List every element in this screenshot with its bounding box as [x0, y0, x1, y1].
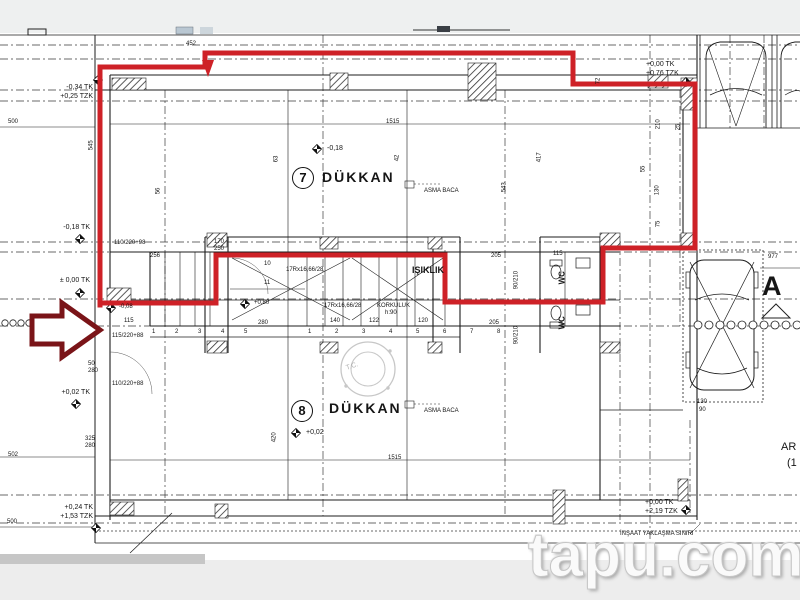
spot-level-stair: +0,80 [254, 300, 269, 306]
elevation-top-right-line2: +0,76 TZK [646, 70, 679, 77]
stair-numbers-right: 1 2 3 4 5 6 7 8 [308, 329, 511, 335]
dim-1515-upper: 1515 [386, 119, 399, 125]
elevation-left-3: +0,02 TK [50, 389, 90, 396]
dim-280-w: 280 [88, 368, 98, 374]
dim-500-upper: 500 [8, 119, 18, 125]
dim-v-545: 545 [89, 140, 95, 150]
elevation-bottom-right-line2: +2,19 TZK [645, 508, 678, 515]
elevation-bottom-left-line1: +0,24 TK [55, 504, 93, 511]
tapu-watermark: tapu.com [528, 520, 800, 591]
dim-205-a: 205 [491, 253, 501, 259]
spot-level-hall: -0,08 [119, 304, 133, 310]
elevation-left-1: -0,18 TK [52, 224, 90, 231]
elevation-top-right-line1: +0,00 TK [646, 61, 674, 68]
dim-115-b: 115 [553, 251, 563, 257]
dim-v-56: 56 [156, 188, 162, 195]
dim-90-park: 90 [699, 407, 706, 413]
room-number-shop8: 8 [291, 400, 313, 422]
dim-v-210: 210 [656, 119, 662, 129]
room-label-lightwell: IŞIKLIK [412, 266, 444, 275]
dim-50: 50 [88, 361, 95, 367]
dim-140: 140 [330, 318, 340, 324]
dim-280: 280 [258, 320, 268, 326]
dim-205-b: 205 [489, 320, 499, 326]
elevation-bottom-left-line2: +1,53 TZK [55, 513, 93, 520]
elevation-top-left-line2: +0,25 TZK [55, 93, 93, 100]
door-label-4b: 90/210 [514, 326, 520, 344]
door-label-3: 110/220+88 [112, 381, 143, 387]
stair-number-10: 10 [264, 261, 271, 267]
dim-v-63: 63 [274, 156, 280, 163]
dim-v-72: 72 [596, 78, 602, 85]
elevation-top-left-line1: -0,34 TK [55, 84, 93, 91]
dim-170: 170 [214, 239, 224, 245]
dim-120: 120 [418, 318, 428, 324]
dim-1515-lower: 1515 [388, 455, 401, 461]
room-label-wc-1: WC [559, 271, 567, 284]
dim-250: 250 [214, 246, 224, 252]
flue-symbols [405, 181, 440, 408]
dim-256: 256 [150, 253, 160, 259]
elevation-left-2: ± 0,00 TK [50, 277, 90, 284]
spot-level-shop8: +0,02 [306, 429, 324, 436]
stair-numbers-left: 1 2 3 4 5 [152, 329, 256, 335]
edge-cut-text-2: (1 [787, 458, 797, 470]
stair-riser-note-2: 17Rx16,66/28 [324, 303, 361, 309]
elevation-bottom-right-line1: +0,00 TK [645, 499, 673, 506]
dim-v-55: 55 [641, 166, 647, 173]
door-label-4a: 90/210 [514, 271, 520, 289]
flue-label-1: ASMA BACA [424, 188, 459, 194]
dim-v-417: 417 [537, 152, 543, 162]
stair-number-11: 11 [264, 280, 270, 286]
dim-v-543: 543 [502, 182, 508, 192]
stair-riser-note-1: 17Rx16,66/28 [286, 267, 323, 273]
stair-railing-height: h:90 [385, 310, 397, 316]
edge-cut-text-1: AR [781, 442, 796, 454]
wall-hatching [107, 63, 697, 524]
section-letter-a: A [762, 272, 782, 300]
dim-122: 122 [369, 318, 379, 324]
dim-452: 452 [186, 41, 196, 47]
location-arrow [32, 303, 100, 357]
dim-v-130: 130 [655, 185, 661, 195]
dim-v-420: 420 [272, 432, 278, 442]
stair-railing-label: KORKULUK [377, 303, 410, 309]
room-label-wc-2: WC [559, 316, 567, 329]
wc-fixtures [550, 258, 590, 328]
room-label-shop7: DÜKKAN [322, 170, 395, 185]
dim-130-park: 130 [697, 399, 707, 405]
unit-boundary-highlight [100, 53, 695, 305]
floorplan-page: -0,34 TK +0,25 TZK -0,18 TK ± 0,00 TK +0… [0, 0, 800, 600]
door-label-1: 110/220+98 [114, 240, 145, 246]
dim-280-w2: 280 [85, 443, 95, 449]
dim-v-75: 75 [656, 221, 662, 228]
door-label-2: 115/220+88 [112, 333, 143, 339]
flue-label-2: ASMA BACA [424, 408, 459, 414]
dim-v-25: 25 [676, 124, 682, 131]
dim-325: 325 [85, 436, 95, 442]
staircase [110, 252, 443, 394]
dim-502: 502 [8, 452, 18, 458]
parking-stalls-top [697, 35, 800, 128]
dim-977: 977 [768, 254, 778, 260]
dim-115: 115 [124, 318, 134, 324]
dim-500-bottom: 500 [7, 519, 17, 525]
floorplan-linework [0, 0, 800, 600]
spot-level-shop7: -0,18 [327, 145, 343, 152]
room-label-shop8: DÜKKAN [329, 401, 402, 416]
dim-v-42: 42 [395, 155, 401, 162]
room-number-shop7: 7 [292, 167, 314, 189]
